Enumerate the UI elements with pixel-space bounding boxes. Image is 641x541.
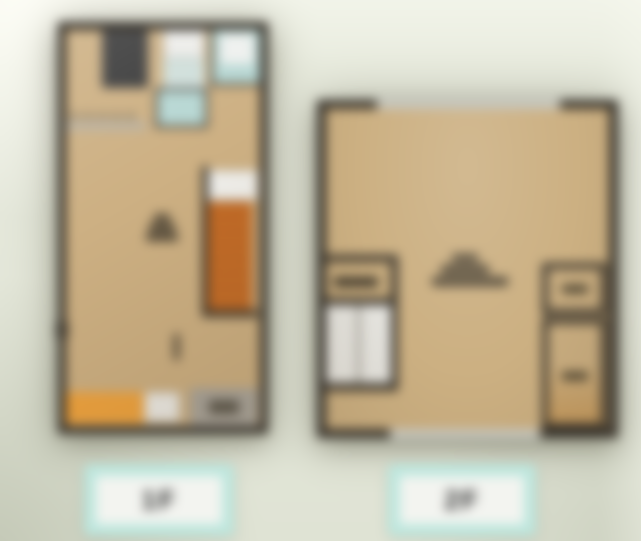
closet-lower xyxy=(542,318,607,429)
stair-closet-label xyxy=(334,277,378,287)
floor-button-2f-label: 2F xyxy=(444,485,480,516)
bathroom xyxy=(155,88,208,128)
window-bottom xyxy=(390,429,540,438)
stair-divider-wall xyxy=(326,298,391,305)
closet-upper-label xyxy=(562,285,588,293)
stair-enclosure-top-wall xyxy=(317,255,398,262)
floor-button-1f[interactable]: 1F xyxy=(84,464,234,536)
entrance-mat xyxy=(209,400,239,414)
floor-button-1f-label: 1F xyxy=(141,485,177,516)
window-top xyxy=(377,100,560,109)
wall-stub xyxy=(174,334,179,360)
stair-closet xyxy=(326,262,391,298)
stair-enclosure-right-wall xyxy=(391,255,398,391)
entrance-gray xyxy=(190,388,258,426)
floor-plan-viewer: 1F 2F xyxy=(0,0,641,541)
window-box xyxy=(208,170,258,200)
staircase-1f xyxy=(208,202,252,310)
dark-kitchen-block xyxy=(102,30,148,88)
counter-yellow xyxy=(66,392,144,424)
kitchen-counter-line xyxy=(66,122,146,130)
sink-white xyxy=(144,392,180,422)
room-label-2f xyxy=(432,252,512,288)
scene-background: 1F 2F xyxy=(0,0,641,541)
closet-upper xyxy=(542,263,607,315)
stair-enclosure-bottom-wall xyxy=(317,383,398,391)
floor-button-1f-face: 1F xyxy=(96,476,222,524)
floor-button-2f-face: 2F xyxy=(400,476,524,524)
floor-plan-1f xyxy=(58,22,268,434)
stair-wall-bottom xyxy=(202,310,258,317)
staircase-2f xyxy=(326,305,391,383)
floor-button-2f[interactable]: 2F xyxy=(388,464,536,536)
bathtub-room xyxy=(210,30,260,86)
closet-lower-label xyxy=(562,372,588,380)
utility-area xyxy=(163,58,205,88)
floor-plan-2f xyxy=(317,100,618,438)
stair-center-line xyxy=(357,305,360,383)
washer-unit xyxy=(163,30,205,58)
door-knob xyxy=(56,322,68,338)
room-label-1f xyxy=(144,212,180,244)
bathtub xyxy=(220,34,254,64)
